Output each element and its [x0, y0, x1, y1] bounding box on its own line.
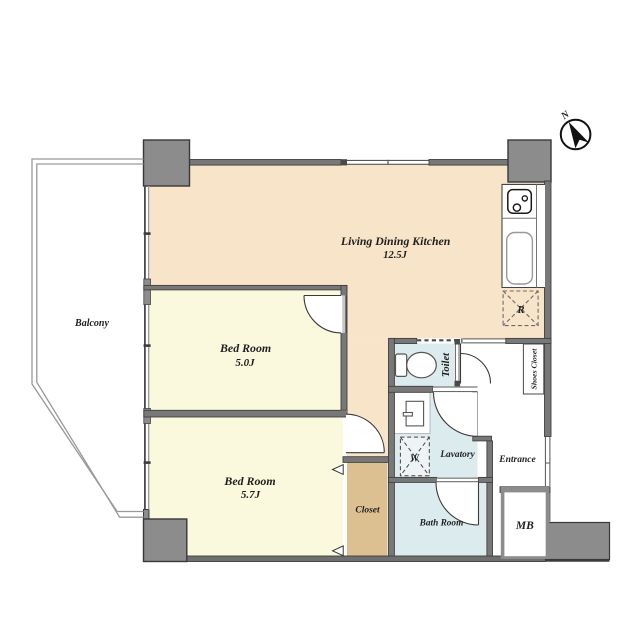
svg-text:Living Dining Kitchen: Living Dining Kitchen	[340, 234, 450, 248]
svg-text:12.5J: 12.5J	[383, 250, 407, 261]
svg-text:Bed Room: Bed Room	[223, 474, 275, 488]
svg-text:Bed Room: Bed Room	[219, 341, 271, 355]
svg-text:Entrance: Entrance	[498, 455, 536, 465]
svg-text:Balcony: Balcony	[74, 318, 109, 329]
svg-text:MB: MB	[515, 520, 534, 532]
svg-text:5.0J: 5.0J	[235, 357, 255, 369]
svg-text:5.7J: 5.7J	[241, 489, 261, 501]
svg-text:Lavatory: Lavatory	[439, 450, 475, 460]
svg-text:Toilet: Toilet	[441, 352, 452, 377]
svg-text:Bath Room: Bath Room	[419, 519, 464, 529]
svg-text:W: W	[410, 454, 420, 465]
svg-text:Shoes Closet: Shoes Closet	[529, 348, 538, 390]
svg-text:R: R	[516, 305, 524, 316]
svg-text:Closet: Closet	[355, 506, 380, 516]
